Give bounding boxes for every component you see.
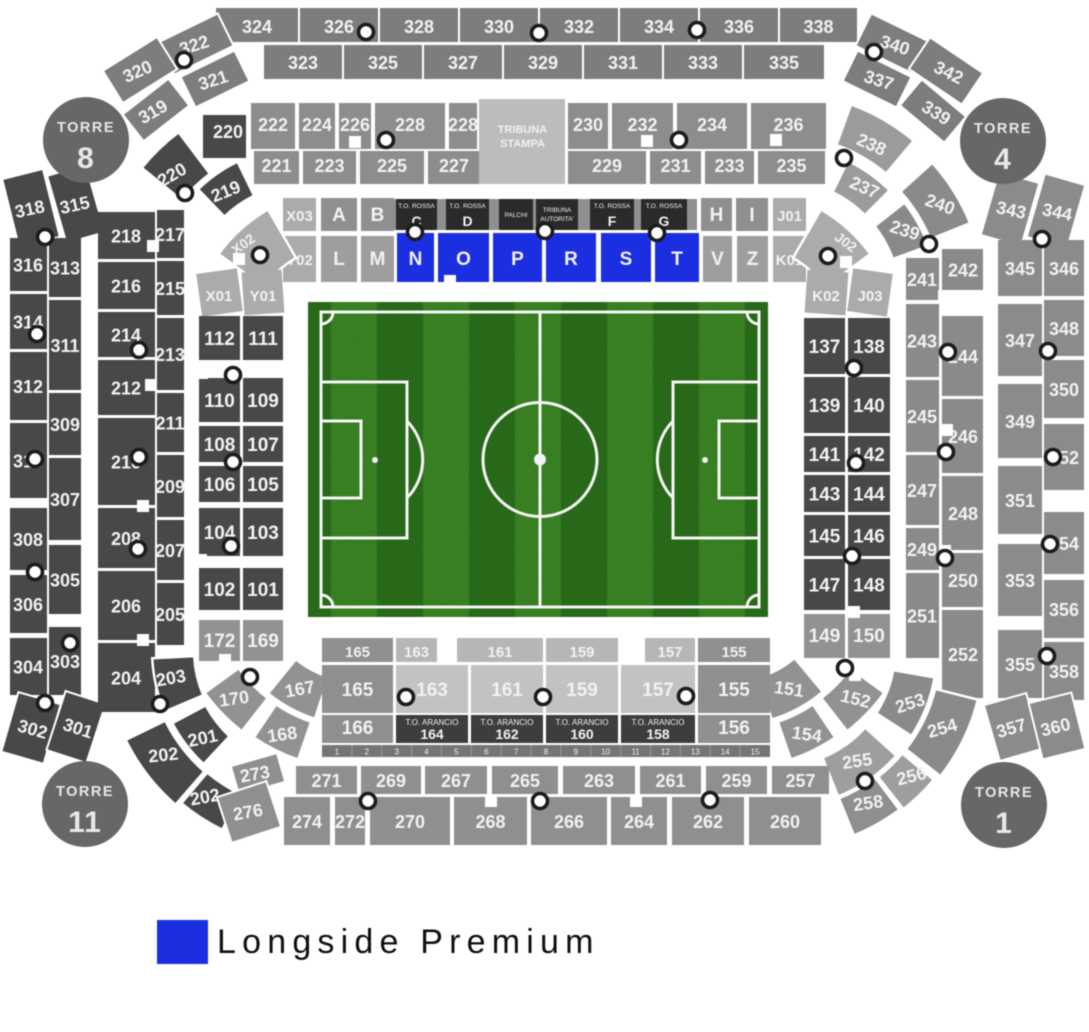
svg-text:331: 331 <box>608 53 638 73</box>
svg-text:161: 161 <box>487 644 512 661</box>
svg-text:236: 236 <box>773 115 803 135</box>
svg-text:205: 205 <box>155 605 185 625</box>
svg-text:1: 1 <box>995 807 1013 840</box>
svg-text:140: 140 <box>853 396 885 417</box>
svg-text:155: 155 <box>718 680 750 701</box>
svg-text:TORRE: TORRE <box>56 784 114 800</box>
svg-text:161: 161 <box>491 680 523 701</box>
svg-text:143: 143 <box>809 485 841 506</box>
svg-text:269: 269 <box>376 771 406 791</box>
svg-text:148: 148 <box>853 576 885 597</box>
svg-text:13: 13 <box>691 748 700 757</box>
svg-text:338: 338 <box>803 17 833 37</box>
svg-text:O: O <box>456 249 471 270</box>
svg-text:263: 263 <box>584 771 614 791</box>
svg-text:307: 307 <box>50 490 80 510</box>
svg-text:1: 1 <box>335 748 340 757</box>
svg-text:111: 111 <box>248 329 278 350</box>
svg-text:8: 8 <box>77 142 95 175</box>
svg-text:226: 226 <box>340 115 370 135</box>
svg-text:220: 220 <box>213 122 243 142</box>
svg-text:328: 328 <box>404 17 434 37</box>
svg-text:169: 169 <box>247 631 279 652</box>
svg-text:M: M <box>370 249 386 270</box>
svg-text:102: 102 <box>204 580 236 601</box>
svg-text:346: 346 <box>1049 259 1079 279</box>
svg-text:151: 151 <box>773 677 806 701</box>
svg-text:271: 271 <box>311 771 341 791</box>
svg-text:T.O. ROSSA: T.O. ROSSA <box>449 203 486 210</box>
svg-text:313: 313 <box>50 259 80 279</box>
svg-text:T.O. ROSSA: T.O. ROSSA <box>594 203 631 210</box>
svg-text:227: 227 <box>439 156 469 176</box>
svg-text:R: R <box>564 249 578 270</box>
svg-text:305: 305 <box>50 571 80 591</box>
svg-text:S: S <box>620 249 633 270</box>
svg-text:335: 335 <box>769 53 799 73</box>
svg-text:L: L <box>333 249 345 270</box>
svg-text:P: P <box>511 249 524 270</box>
svg-text:235: 235 <box>776 156 806 176</box>
svg-text:112: 112 <box>204 329 235 350</box>
svg-text:H: H <box>710 205 724 226</box>
svg-text:4: 4 <box>994 143 1012 176</box>
svg-text:250: 250 <box>948 571 978 591</box>
svg-text:T.O. ROSSA: T.O. ROSSA <box>646 203 683 210</box>
svg-text:330: 330 <box>484 17 514 37</box>
svg-text:223: 223 <box>314 156 344 176</box>
svg-text:356: 356 <box>1049 600 1079 620</box>
svg-text:TRIBUNA: TRIBUNA <box>498 124 548 136</box>
svg-text:109: 109 <box>247 391 279 412</box>
svg-text:265: 265 <box>510 771 540 791</box>
svg-text:X03: X03 <box>286 208 313 225</box>
svg-text:4: 4 <box>424 748 429 757</box>
svg-text:258: 258 <box>852 791 885 815</box>
svg-text:F: F <box>608 213 617 229</box>
svg-text:243: 243 <box>907 332 937 352</box>
svg-text:154: 154 <box>791 722 824 746</box>
svg-text:267: 267 <box>441 771 471 791</box>
svg-text:150: 150 <box>853 626 885 647</box>
svg-text:146: 146 <box>853 527 885 548</box>
svg-text:213: 213 <box>155 345 185 365</box>
svg-text:259: 259 <box>721 771 751 791</box>
svg-text:232: 232 <box>627 115 657 135</box>
svg-text:212: 212 <box>111 379 141 399</box>
svg-text:242: 242 <box>948 261 978 281</box>
svg-text:159: 159 <box>566 680 598 701</box>
svg-text:231: 231 <box>660 156 690 176</box>
svg-text:211: 211 <box>155 414 184 434</box>
svg-text:332: 332 <box>564 17 594 37</box>
svg-text:TORRE: TORRE <box>974 121 1032 137</box>
svg-text:262: 262 <box>693 812 723 832</box>
svg-text:101: 101 <box>247 580 279 601</box>
svg-text:9: 9 <box>574 748 579 757</box>
svg-text:329: 329 <box>528 53 558 73</box>
svg-text:336: 336 <box>724 17 754 37</box>
svg-text:304: 304 <box>13 658 43 678</box>
svg-text:6: 6 <box>484 748 489 757</box>
svg-text:347: 347 <box>1005 331 1035 351</box>
svg-text:333: 333 <box>688 53 718 73</box>
svg-text:X01: X01 <box>206 288 233 305</box>
svg-text:255: 255 <box>841 749 874 773</box>
svg-text:209: 209 <box>155 477 185 497</box>
svg-text:J01: J01 <box>777 208 802 225</box>
svg-text:D: D <box>462 213 472 229</box>
svg-text:316: 316 <box>13 256 43 276</box>
svg-text:Y01: Y01 <box>250 288 277 305</box>
svg-text:202: 202 <box>147 744 179 767</box>
svg-text:251: 251 <box>907 607 937 627</box>
svg-text:207: 207 <box>155 541 185 561</box>
svg-text:STAMPA: STAMPA <box>500 138 545 150</box>
svg-text:234: 234 <box>697 115 727 135</box>
svg-text:12: 12 <box>661 748 670 757</box>
svg-text:163: 163 <box>404 644 429 661</box>
svg-text:103: 103 <box>247 523 279 544</box>
svg-text:306: 306 <box>13 595 43 615</box>
svg-text:K02: K02 <box>812 288 840 305</box>
svg-text:222: 222 <box>258 115 288 135</box>
svg-text:TRIBUNA: TRIBUNA <box>543 207 572 214</box>
svg-text:105: 105 <box>247 475 279 496</box>
svg-text:158: 158 <box>646 726 670 742</box>
svg-text:A: A <box>332 205 346 226</box>
svg-text:217: 217 <box>155 225 185 245</box>
svg-text:108: 108 <box>204 435 236 456</box>
svg-text:204: 204 <box>111 669 141 689</box>
svg-text:11: 11 <box>68 806 102 839</box>
svg-text:348: 348 <box>1049 319 1079 339</box>
svg-text:7: 7 <box>514 748 519 757</box>
svg-text:270: 270 <box>395 812 425 832</box>
svg-text:311: 311 <box>50 336 79 356</box>
svg-text:170: 170 <box>218 687 251 711</box>
svg-text:15: 15 <box>751 748 760 757</box>
svg-text:248: 248 <box>948 504 978 524</box>
svg-text:268: 268 <box>475 812 505 832</box>
svg-text:349: 349 <box>1005 412 1035 432</box>
svg-text:166: 166 <box>342 718 374 739</box>
svg-text:247: 247 <box>907 481 937 501</box>
svg-text:249: 249 <box>907 540 937 560</box>
svg-text:138: 138 <box>853 337 885 358</box>
svg-text:274: 274 <box>292 812 322 832</box>
svg-text:8: 8 <box>544 748 549 757</box>
svg-text:147: 147 <box>809 576 841 597</box>
svg-text:245: 245 <box>907 407 937 427</box>
svg-text:145: 145 <box>809 527 841 548</box>
svg-text:5: 5 <box>454 748 459 757</box>
svg-text:345: 345 <box>1005 259 1035 279</box>
svg-text:327: 327 <box>448 53 478 73</box>
svg-text:358: 358 <box>1049 662 1079 682</box>
svg-text:229: 229 <box>592 156 622 176</box>
svg-text:221: 221 <box>261 156 291 176</box>
svg-text:309: 309 <box>50 415 80 435</box>
svg-text:323: 323 <box>288 53 318 73</box>
svg-text:308: 308 <box>13 530 43 550</box>
svg-text:218: 218 <box>111 227 141 247</box>
svg-text:264: 264 <box>624 812 654 832</box>
svg-text:J03: J03 <box>857 288 882 305</box>
svg-text:230: 230 <box>573 115 603 135</box>
svg-text:149: 149 <box>809 626 841 647</box>
svg-text:225: 225 <box>377 156 407 176</box>
svg-text:162: 162 <box>495 726 519 742</box>
svg-text:10: 10 <box>601 748 610 757</box>
svg-text:157: 157 <box>657 644 682 661</box>
svg-text:156: 156 <box>718 718 750 739</box>
svg-text:144: 144 <box>853 485 885 506</box>
svg-text:228: 228 <box>448 115 478 135</box>
svg-text:216: 216 <box>111 277 141 297</box>
svg-text:T: T <box>671 249 683 270</box>
svg-text:106: 106 <box>204 475 236 496</box>
svg-text:260: 260 <box>770 812 800 832</box>
svg-text:172: 172 <box>204 631 236 652</box>
svg-text:T.O. ROSSA: T.O. ROSSA <box>398 203 435 210</box>
svg-text:141: 141 <box>809 445 841 466</box>
svg-text:V: V <box>711 249 724 270</box>
svg-text:168: 168 <box>266 722 299 746</box>
svg-text:157: 157 <box>642 680 674 701</box>
svg-text:139: 139 <box>809 396 841 417</box>
svg-text:164: 164 <box>420 726 444 742</box>
svg-text:350: 350 <box>1049 380 1079 400</box>
svg-text:14: 14 <box>721 748 730 757</box>
svg-text:257: 257 <box>785 771 815 791</box>
svg-text:353: 353 <box>1005 571 1035 591</box>
svg-text:241: 241 <box>907 270 937 290</box>
svg-text:TORRE: TORRE <box>57 120 115 136</box>
svg-text:Longside Premium: Longside Premium <box>217 923 600 961</box>
svg-text:165: 165 <box>342 680 374 701</box>
svg-text:107: 107 <box>247 435 279 456</box>
svg-text:206: 206 <box>111 597 141 617</box>
svg-text:I: I <box>749 205 754 226</box>
svg-text:351: 351 <box>1005 491 1035 511</box>
svg-text:215: 215 <box>155 279 185 299</box>
svg-text:224: 224 <box>302 115 332 135</box>
svg-text:159: 159 <box>569 644 594 661</box>
svg-text:272: 272 <box>335 812 365 832</box>
svg-text:N: N <box>409 249 423 270</box>
svg-text:312: 312 <box>13 377 43 397</box>
svg-text:252: 252 <box>948 645 978 665</box>
svg-text:355: 355 <box>1005 655 1035 675</box>
svg-text:Z: Z <box>747 249 759 270</box>
svg-text:TORRE: TORRE <box>975 785 1033 801</box>
svg-text:2: 2 <box>365 748 370 757</box>
svg-text:261: 261 <box>655 771 685 791</box>
svg-text:155: 155 <box>721 644 746 661</box>
svg-text:326: 326 <box>324 17 354 37</box>
svg-text:163: 163 <box>416 680 448 701</box>
svg-text:11: 11 <box>631 748 640 757</box>
svg-text:324: 324 <box>242 17 272 37</box>
svg-text:110: 110 <box>204 391 235 412</box>
svg-text:160: 160 <box>570 726 594 742</box>
svg-text:266: 266 <box>554 812 584 832</box>
svg-text:325: 325 <box>368 53 398 73</box>
svg-text:303: 303 <box>50 652 80 672</box>
svg-text:334: 334 <box>644 17 674 37</box>
svg-text:3: 3 <box>394 748 399 757</box>
svg-text:137: 137 <box>809 337 841 358</box>
svg-text:228: 228 <box>395 115 425 135</box>
svg-text:B: B <box>371 205 385 226</box>
svg-text:165: 165 <box>345 644 370 661</box>
svg-text:233: 233 <box>714 156 744 176</box>
svg-text:PALCHI: PALCHI <box>505 212 528 219</box>
